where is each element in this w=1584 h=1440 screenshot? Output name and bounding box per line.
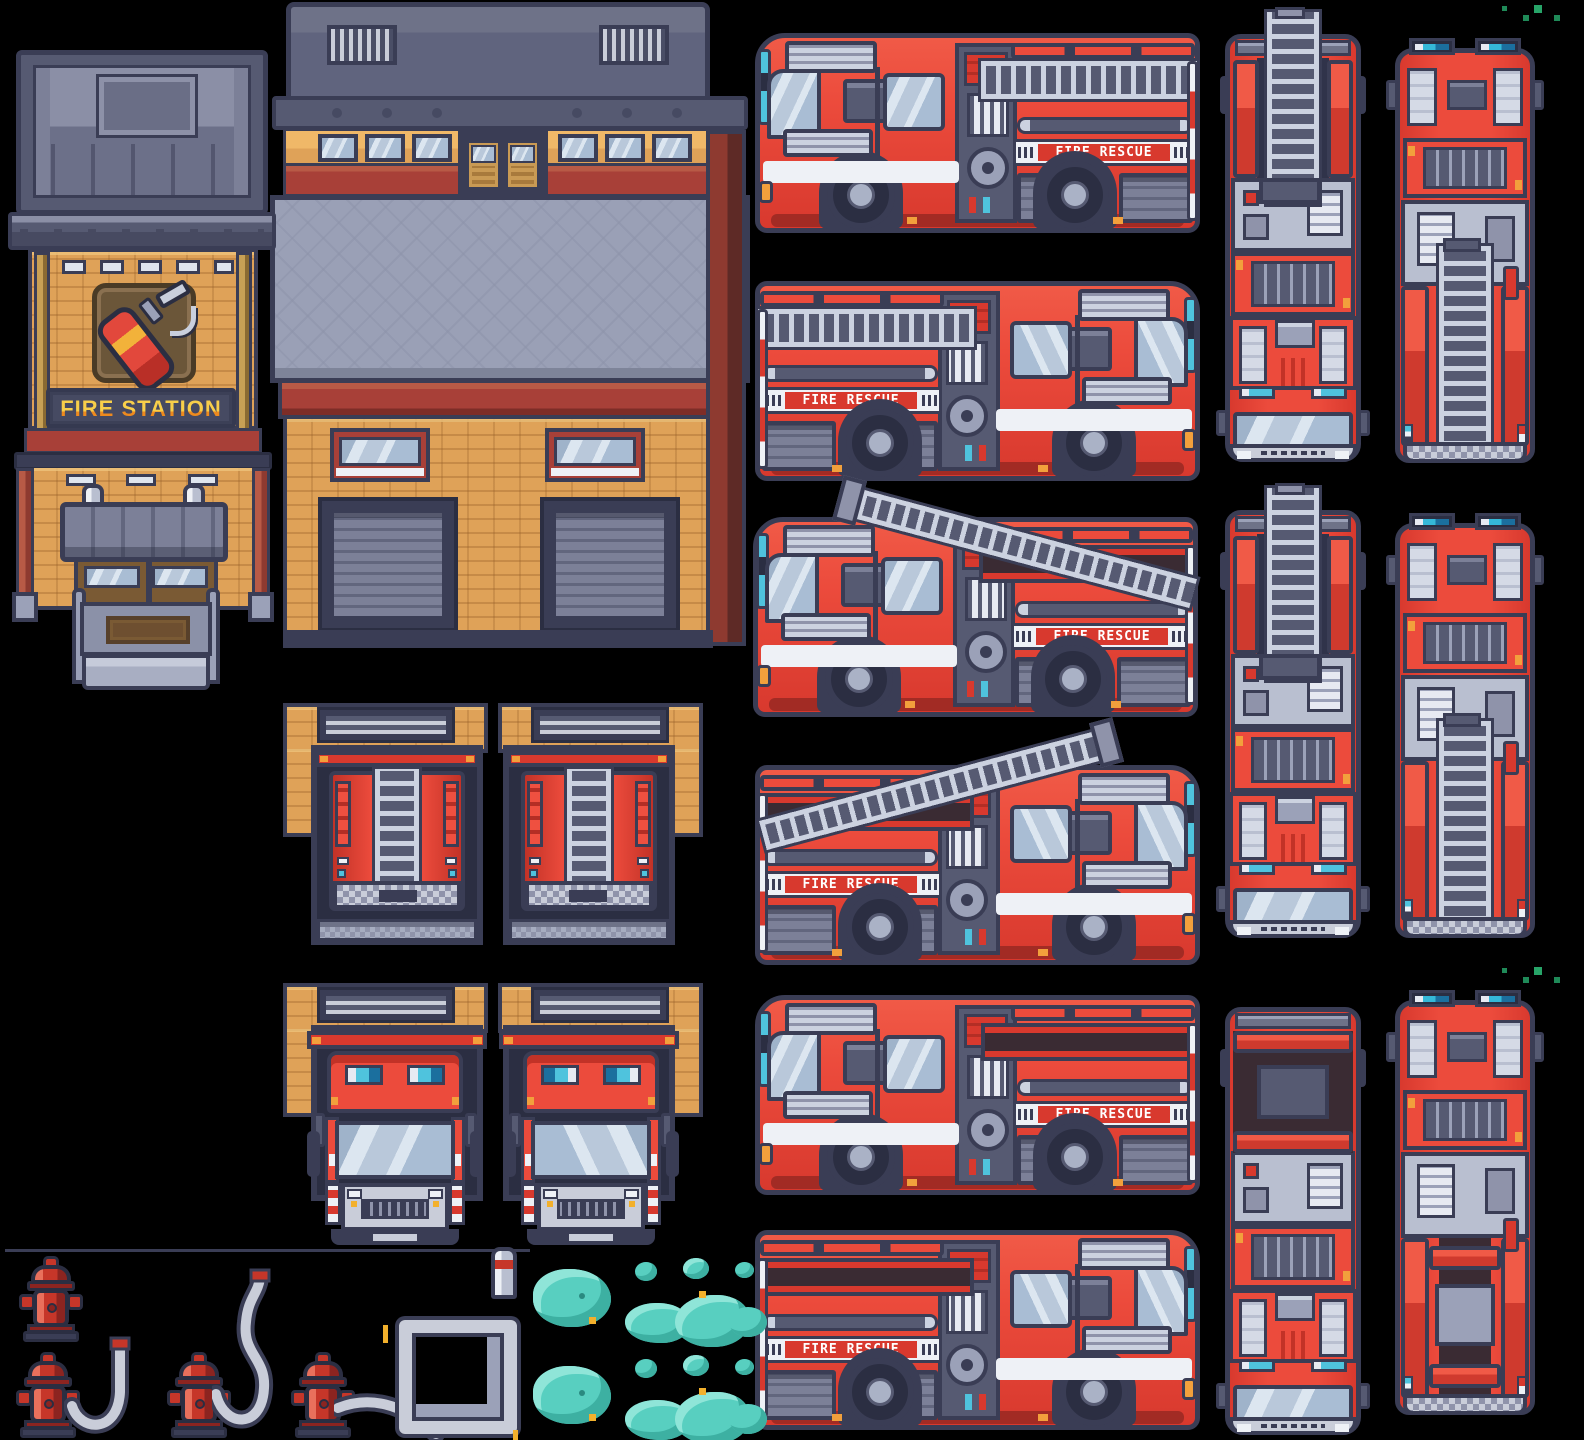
guide-line xyxy=(5,1249,530,1252)
eave-rivet-6 xyxy=(672,108,682,118)
sprite-garage-rear-right xyxy=(498,703,703,948)
rear-top-rail xyxy=(1011,1005,1195,1021)
shutter-right xyxy=(762,1370,836,1420)
lintel-vent xyxy=(317,987,455,1023)
tail-lights-left xyxy=(1403,1376,1413,1396)
mirror-left xyxy=(1386,555,1398,585)
marker-light-rear xyxy=(1113,217,1123,224)
hall-fascia xyxy=(278,379,744,419)
rear-wheel xyxy=(1041,161,1109,229)
clerestory-window-3 xyxy=(412,134,452,162)
rear-wheel-hub xyxy=(1061,1143,1089,1171)
cab-top xyxy=(1229,1289,1357,1363)
upper-door xyxy=(458,130,548,197)
rear-edge-lights xyxy=(1185,545,1196,705)
rear-wheel xyxy=(1039,645,1107,713)
fire-station-building: FIRE STATION xyxy=(0,0,760,710)
grass-speck xyxy=(1554,977,1560,983)
sprite-garage-front-left xyxy=(283,983,488,1245)
front-bumper xyxy=(537,1183,645,1231)
cab-hatch xyxy=(1275,1293,1315,1321)
front-wheel-hub xyxy=(1080,429,1108,457)
tower-slit-1 xyxy=(62,260,86,274)
rail-lamp-right xyxy=(473,1037,482,1044)
hall-window-left xyxy=(330,428,430,482)
cab-stripe xyxy=(761,645,957,667)
side-pod-left xyxy=(666,1131,679,1177)
roof-vent-left xyxy=(327,25,397,65)
hall-window-right-sill xyxy=(551,468,639,476)
steam-cloud-big-hole xyxy=(579,1390,585,1396)
hose-reel xyxy=(965,631,1007,673)
eave-rivet-2 xyxy=(382,108,392,118)
lever-red xyxy=(967,681,974,697)
headlight-right xyxy=(1335,1424,1349,1432)
tower-slit-3 xyxy=(138,260,162,274)
hose-reel-hub xyxy=(961,410,973,422)
hose-reel xyxy=(967,1109,1009,1151)
garage-floor xyxy=(317,919,477,941)
lightbar-right-glow xyxy=(1481,519,1515,525)
steam-lump-3 xyxy=(729,1307,767,1337)
tail-lights-right xyxy=(1517,424,1527,444)
sprite-truck-side-right-stowed: FIRE RESCUE xyxy=(755,281,1200,481)
cab-panel-right xyxy=(1493,543,1523,601)
rear-top-rail xyxy=(760,1240,944,1256)
mirror-left xyxy=(1216,886,1228,912)
lightbar-left xyxy=(1409,990,1455,1007)
base-step xyxy=(373,1234,417,1241)
aerial-ladder xyxy=(1439,721,1491,921)
wall-column xyxy=(671,749,703,837)
steam-puff-2 xyxy=(683,1355,709,1376)
bay-marker-right xyxy=(1343,298,1350,308)
eave-rivet-4 xyxy=(572,108,582,118)
cab-top xyxy=(1401,1010,1529,1088)
decal-band-ticks-left xyxy=(1018,147,1034,158)
upper-door-right-glass xyxy=(510,145,535,163)
sprite-truck-top-up-ladder-2 xyxy=(1395,513,1535,938)
truck-rear xyxy=(515,769,663,925)
equipment-vent xyxy=(946,1290,988,1334)
corner-stripes-right xyxy=(449,1183,465,1225)
aerial-ladder xyxy=(1439,246,1491,446)
front-base xyxy=(527,1229,655,1245)
headlight xyxy=(757,665,771,687)
door-window xyxy=(1010,1270,1072,1328)
red-handle xyxy=(1503,741,1519,775)
garage-door-left-shutter xyxy=(330,509,446,620)
sprite-truck-side-left-empty: FIRE RESCUE xyxy=(755,995,1200,1195)
marker-light-front xyxy=(905,701,915,708)
headlight-left xyxy=(1237,927,1251,935)
tower-red-band xyxy=(24,428,262,454)
cab-panel-left xyxy=(1239,802,1267,860)
mirror-right xyxy=(1532,80,1544,110)
lever-cyan xyxy=(965,1394,972,1410)
equipment-vent xyxy=(967,1055,1009,1099)
marker-light-front xyxy=(1038,949,1048,956)
headlight-right xyxy=(428,1189,443,1199)
headlight xyxy=(1182,429,1196,451)
hose-reel xyxy=(946,879,988,921)
rear-wheel-hub xyxy=(866,429,894,457)
equipment-bay-slats xyxy=(1423,1099,1507,1141)
porch-slab xyxy=(80,602,212,656)
rail-lamp-right xyxy=(512,756,520,762)
lightbar-left xyxy=(1409,38,1455,55)
hall-main-roof xyxy=(270,195,750,383)
hose-bed-bar xyxy=(1017,117,1193,134)
upper-door-left xyxy=(466,140,501,190)
sprite-truck-top-up-ladder-1 xyxy=(1395,38,1535,463)
platform-gray-panel xyxy=(1485,1168,1515,1214)
bay-marker-left xyxy=(1236,260,1243,270)
lightbar-left-glow xyxy=(1415,519,1449,525)
sprite-steam-clouds-row2 xyxy=(533,1352,773,1440)
marker-light-rear xyxy=(832,465,842,472)
headlight-left xyxy=(347,1189,362,1199)
lightbar-left-glow xyxy=(1415,44,1449,50)
tower-slit-5 xyxy=(214,260,234,274)
rear-wheel xyxy=(846,1358,914,1426)
headlight xyxy=(1182,1378,1196,1400)
rack-rail-right xyxy=(1327,536,1353,654)
stowed-ladder xyxy=(981,61,1197,99)
hose-bed-bar xyxy=(1015,601,1191,618)
roof-vent-right xyxy=(599,25,669,65)
lightbar-left xyxy=(1409,513,1455,530)
rear-light-teal-left xyxy=(337,869,346,878)
hydrant-arm-right xyxy=(67,1294,83,1310)
porch-door-divider xyxy=(146,562,152,602)
license-plate xyxy=(569,890,607,902)
front-wheel-hub xyxy=(847,181,875,209)
mid-bay-slats xyxy=(1251,1234,1335,1280)
sprite-truck-top-up-empty xyxy=(1395,990,1535,1415)
grass-specks-middle xyxy=(1497,964,1567,986)
windshield xyxy=(335,1121,455,1179)
rail-lamp-right xyxy=(466,756,474,762)
platform-knob xyxy=(1243,1163,1259,1179)
side-pod-left xyxy=(307,1131,320,1177)
ladder-head xyxy=(1443,713,1481,727)
tower-slit-2 xyxy=(100,260,124,274)
truck-front xyxy=(319,1047,471,1245)
tower-slit-4 xyxy=(176,260,200,274)
ladder-pulley xyxy=(1275,7,1305,19)
windshield xyxy=(531,1121,651,1179)
rack-box xyxy=(1257,1065,1329,1119)
equipment-vent xyxy=(946,341,988,385)
grass-speck xyxy=(1534,5,1542,13)
mid-bay-slats xyxy=(1251,261,1335,307)
pillar-stripe-left xyxy=(651,1154,657,1166)
decal-band-ticks-left xyxy=(1018,1109,1034,1120)
mid-bay xyxy=(1231,728,1355,792)
hall-eave xyxy=(272,96,748,130)
front-bumper xyxy=(341,1183,449,1231)
rear-ladder xyxy=(567,769,611,891)
cab-panel-right xyxy=(1493,68,1523,126)
hydrant-body xyxy=(30,1385,66,1423)
headlight-right xyxy=(1335,451,1349,459)
side-pod-left xyxy=(1220,76,1229,114)
pilaster-base-left xyxy=(12,592,38,622)
rear-bumper xyxy=(333,881,461,909)
rack-bar-bottom xyxy=(1233,1131,1353,1153)
hall-side-return xyxy=(706,130,746,646)
rack-bar-bottom xyxy=(1429,1364,1501,1388)
cab-stripe xyxy=(763,1123,959,1145)
rear-bumper xyxy=(1235,1013,1351,1029)
tower-cornice xyxy=(8,212,276,250)
platform-slat-panel xyxy=(1417,1164,1455,1218)
rack-bar-top xyxy=(1429,1246,1501,1270)
headlight-right xyxy=(543,1189,558,1199)
empty-rack xyxy=(1439,1238,1491,1396)
cab-top xyxy=(1229,792,1357,866)
red-handle xyxy=(1503,266,1519,300)
lightbar-right-glow xyxy=(1481,996,1515,1002)
upper-door-right xyxy=(505,140,540,190)
marker-light-front xyxy=(1038,465,1048,472)
roof-marker-left xyxy=(648,1097,655,1105)
cab-seams xyxy=(1281,1331,1311,1359)
fog-dot-right xyxy=(433,1201,439,1207)
rail-lamp-left xyxy=(312,1037,321,1044)
roof-marker-right xyxy=(452,1097,459,1105)
hose-tall-s xyxy=(212,1268,304,1440)
lintel-vent xyxy=(317,707,455,743)
equipment-bay xyxy=(1403,613,1527,673)
decal-band-ticks-left xyxy=(921,879,937,890)
roof-light-right xyxy=(1311,1359,1347,1372)
aerial-ladder xyxy=(1267,12,1319,204)
rear-light-white-left xyxy=(337,857,349,865)
decal-band-ticks-left xyxy=(921,1344,937,1355)
steam-puff-1 xyxy=(635,1262,657,1281)
hall-window-right xyxy=(545,428,645,482)
lintel-vent-slats xyxy=(326,996,446,1014)
ladder-base xyxy=(1259,654,1321,680)
hose-reel-hub xyxy=(980,646,992,658)
yellow-tick-1 xyxy=(383,1325,388,1343)
front-grille xyxy=(1261,451,1325,455)
corner-stripes-right xyxy=(521,1183,537,1225)
long-rail-left xyxy=(1401,1238,1429,1398)
rear-light-white-right xyxy=(445,857,457,865)
yellow-tick-2 xyxy=(513,1430,518,1440)
platform-knob xyxy=(1243,190,1259,206)
upper-door-left-slats xyxy=(472,166,495,184)
shutter-right xyxy=(1119,173,1193,223)
front-grille xyxy=(1261,927,1325,931)
rear-wheel xyxy=(1041,1123,1109,1191)
clerestory-window-6 xyxy=(652,134,692,162)
front-wheel-hub xyxy=(1080,913,1108,941)
hall-window-left-sill xyxy=(336,468,424,476)
headlight-right xyxy=(1335,927,1349,935)
front-wheel-hub xyxy=(847,1143,875,1171)
sprite-steam-clouds-row1 xyxy=(533,1255,773,1350)
steam-puff-2 xyxy=(683,1258,709,1279)
mid-bay xyxy=(1231,1225,1355,1289)
hall-window-right-glass xyxy=(554,437,636,466)
upper-door-left-glass xyxy=(471,145,496,163)
corner-stripes-left xyxy=(645,1183,661,1225)
roof-light-right xyxy=(1311,386,1347,399)
lever-cyan xyxy=(965,929,972,945)
front-wheel-hub xyxy=(845,665,873,693)
rear-light-teal-left xyxy=(640,869,649,878)
mirror-left xyxy=(1386,1032,1398,1062)
mirror-left xyxy=(1216,1383,1228,1409)
rear-ladder xyxy=(375,769,419,891)
rail-lamp-left xyxy=(665,1037,674,1044)
pillar-stripe-right xyxy=(455,1154,461,1166)
cab-panel-left xyxy=(1407,1020,1437,1078)
bay-marker-left xyxy=(1408,1098,1415,1108)
lever-cyan xyxy=(983,197,990,213)
garage-door-right xyxy=(540,497,680,632)
tail-lights-right xyxy=(1517,899,1527,919)
hose-reel-hub xyxy=(982,162,994,174)
ladder-base xyxy=(1259,178,1321,204)
rear-edge-lights xyxy=(1187,1023,1198,1183)
rack-bar-top xyxy=(1233,1031,1353,1053)
cab-side-vent xyxy=(1082,861,1172,889)
hose-reel-hub xyxy=(961,1359,973,1371)
equipment-bay xyxy=(1403,1090,1527,1150)
mid-bay-slats xyxy=(1251,737,1335,783)
door-window xyxy=(881,557,943,615)
lintel-vent-slats xyxy=(326,716,446,734)
rear-wheel xyxy=(846,893,914,961)
cab-side-vent xyxy=(1082,377,1172,405)
rear-wheel-hub xyxy=(1059,665,1087,693)
door-window xyxy=(883,73,945,131)
hall-base xyxy=(283,630,713,648)
platform-panel xyxy=(1307,1163,1343,1209)
headlight-left xyxy=(1237,451,1251,459)
cab-panel-right xyxy=(1493,1020,1523,1078)
steam-spark-2 xyxy=(699,1291,706,1298)
cab-side-vent xyxy=(781,613,871,641)
tail-lights-left xyxy=(1403,899,1413,919)
porch-step xyxy=(82,654,210,690)
roof-window-right xyxy=(407,1065,445,1085)
aerial-ladder xyxy=(1267,488,1319,680)
steam-spark xyxy=(589,1414,596,1421)
ladder-tip xyxy=(1089,717,1124,768)
steam-puff-1 xyxy=(635,1359,657,1378)
steam-cloud-big xyxy=(533,1366,611,1424)
rear-light-white-right xyxy=(529,857,541,865)
steam-puff-3 xyxy=(735,1359,754,1375)
lower-slit-2 xyxy=(126,474,156,486)
extinguisher-body xyxy=(92,302,180,397)
bumper-grille xyxy=(361,1199,429,1219)
grass-speck xyxy=(1534,967,1542,975)
cab-panel-right xyxy=(1319,802,1347,860)
sprite-truck-top-down-ladder-2 xyxy=(1225,488,1361,938)
corner-stripes-left xyxy=(325,1183,341,1225)
lintel-vent-slats xyxy=(540,996,660,1014)
cab-side-vent xyxy=(1082,1326,1172,1354)
hose-reel xyxy=(967,147,1009,189)
bay-marker-left xyxy=(1408,146,1415,156)
marker-light-rear xyxy=(832,1414,842,1421)
rack-box xyxy=(1435,1284,1495,1346)
cab-stripe xyxy=(996,409,1192,431)
sprite-truck-top-down-ladder-1 xyxy=(1225,12,1361,462)
marker-light-front xyxy=(907,1179,917,1186)
red-door-rail xyxy=(499,1031,679,1049)
hydrant-bolt xyxy=(44,1399,54,1409)
bay-marker-left xyxy=(1236,1233,1243,1243)
cab-panel-left xyxy=(1407,68,1437,126)
cab-side-vent xyxy=(783,1091,873,1119)
long-rail-right xyxy=(1501,761,1529,921)
hall-window-left-glass xyxy=(339,437,421,466)
equipment-vent xyxy=(946,825,988,869)
hose-frame xyxy=(399,1320,517,1434)
lightbar-left-glow xyxy=(1415,996,1449,1002)
mirror-right xyxy=(1532,1032,1544,1062)
mirror-right xyxy=(1358,410,1370,436)
empty-rack xyxy=(1233,1031,1353,1153)
mirror-right xyxy=(1358,886,1370,912)
cab-stripe xyxy=(996,1358,1192,1380)
steam-puff-3 xyxy=(735,1262,754,1278)
garage-floor xyxy=(509,919,669,941)
equipment-bay-slats xyxy=(1423,622,1507,664)
equipment-vent xyxy=(965,577,1007,621)
platform-box xyxy=(1243,214,1269,240)
cab-panel-right xyxy=(1319,326,1347,384)
empty-roof-rack xyxy=(981,1023,1197,1061)
grass-speck xyxy=(1502,968,1507,973)
lever-red xyxy=(979,445,986,461)
headlight xyxy=(1182,913,1196,935)
hose-short-hook xyxy=(64,1330,134,1440)
hall-roof-box xyxy=(286,2,710,110)
fog-dot-left xyxy=(629,1201,635,1207)
mid-bay xyxy=(1231,252,1355,316)
cab-top xyxy=(1229,316,1357,390)
rear-edge-lights xyxy=(757,793,768,953)
red-door-rail xyxy=(507,751,671,767)
steam-cloud-big-hole xyxy=(579,1293,585,1299)
shutter-right xyxy=(1117,657,1191,707)
rear-edge-lights xyxy=(1187,61,1198,221)
marker-light-rear xyxy=(1113,1179,1123,1186)
hydrant-bolt xyxy=(195,1399,205,1409)
red-door-rail xyxy=(307,1031,487,1049)
sprite-sheet-canvas: FIRE STATION xyxy=(0,0,1584,1440)
roof-window-left xyxy=(345,1065,383,1085)
cab-panel-left xyxy=(1239,1299,1267,1357)
hose-bed-bar xyxy=(1017,1079,1193,1096)
lever-cyan xyxy=(983,1159,990,1175)
garage-door-right-shutter xyxy=(552,509,668,620)
cab-roof xyxy=(523,1051,659,1113)
lever-red xyxy=(969,197,976,213)
bay-marker-right xyxy=(1343,774,1350,784)
grass-speck xyxy=(1523,15,1529,21)
lever-red xyxy=(979,1394,986,1410)
